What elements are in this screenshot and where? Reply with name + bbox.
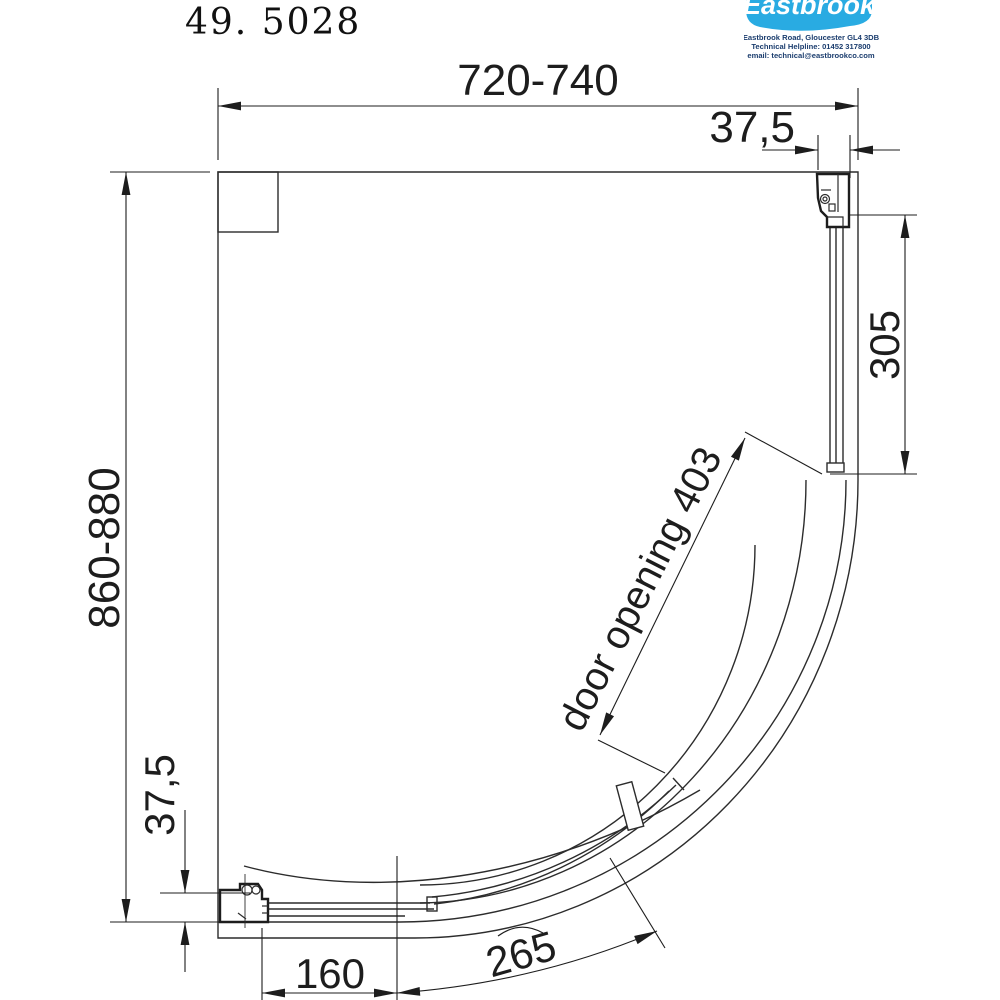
dim-wall-profile-bottom-label: 37,5: [136, 754, 183, 836]
dim-wall-profile-top-label: 37,5: [709, 103, 795, 152]
enclosure-plan-drawing: 720-740 37,5 305 860-880 37,5 160 265 do…: [0, 0, 1000, 1000]
bottom-glass-panel: [268, 897, 437, 916]
fixed-glass-arc: [420, 480, 806, 903]
corner-post: [218, 172, 278, 232]
drawing-sheet: { "title": "49. 5028", "logo": { "brand"…: [0, 0, 1000, 1000]
dim-overall-height-label: 860-880: [80, 467, 129, 628]
dim-fixed-side-panel-label: 305: [861, 310, 908, 380]
frame-arc-inner: [400, 480, 846, 922]
wall-profile-top-right: [817, 174, 849, 227]
door-handle: [616, 782, 643, 831]
side-glass-panel: [827, 228, 844, 472]
tray-outline: [218, 172, 858, 938]
door-glass-arc: [432, 778, 684, 904]
dim-door-opening-label: door opening 403: [550, 440, 731, 737]
wall-profile-bottom-left: [220, 874, 268, 928]
dim-fixed-bottom-panel-label: 160: [295, 950, 365, 997]
dim-overall-width-label: 720-740: [457, 56, 618, 105]
